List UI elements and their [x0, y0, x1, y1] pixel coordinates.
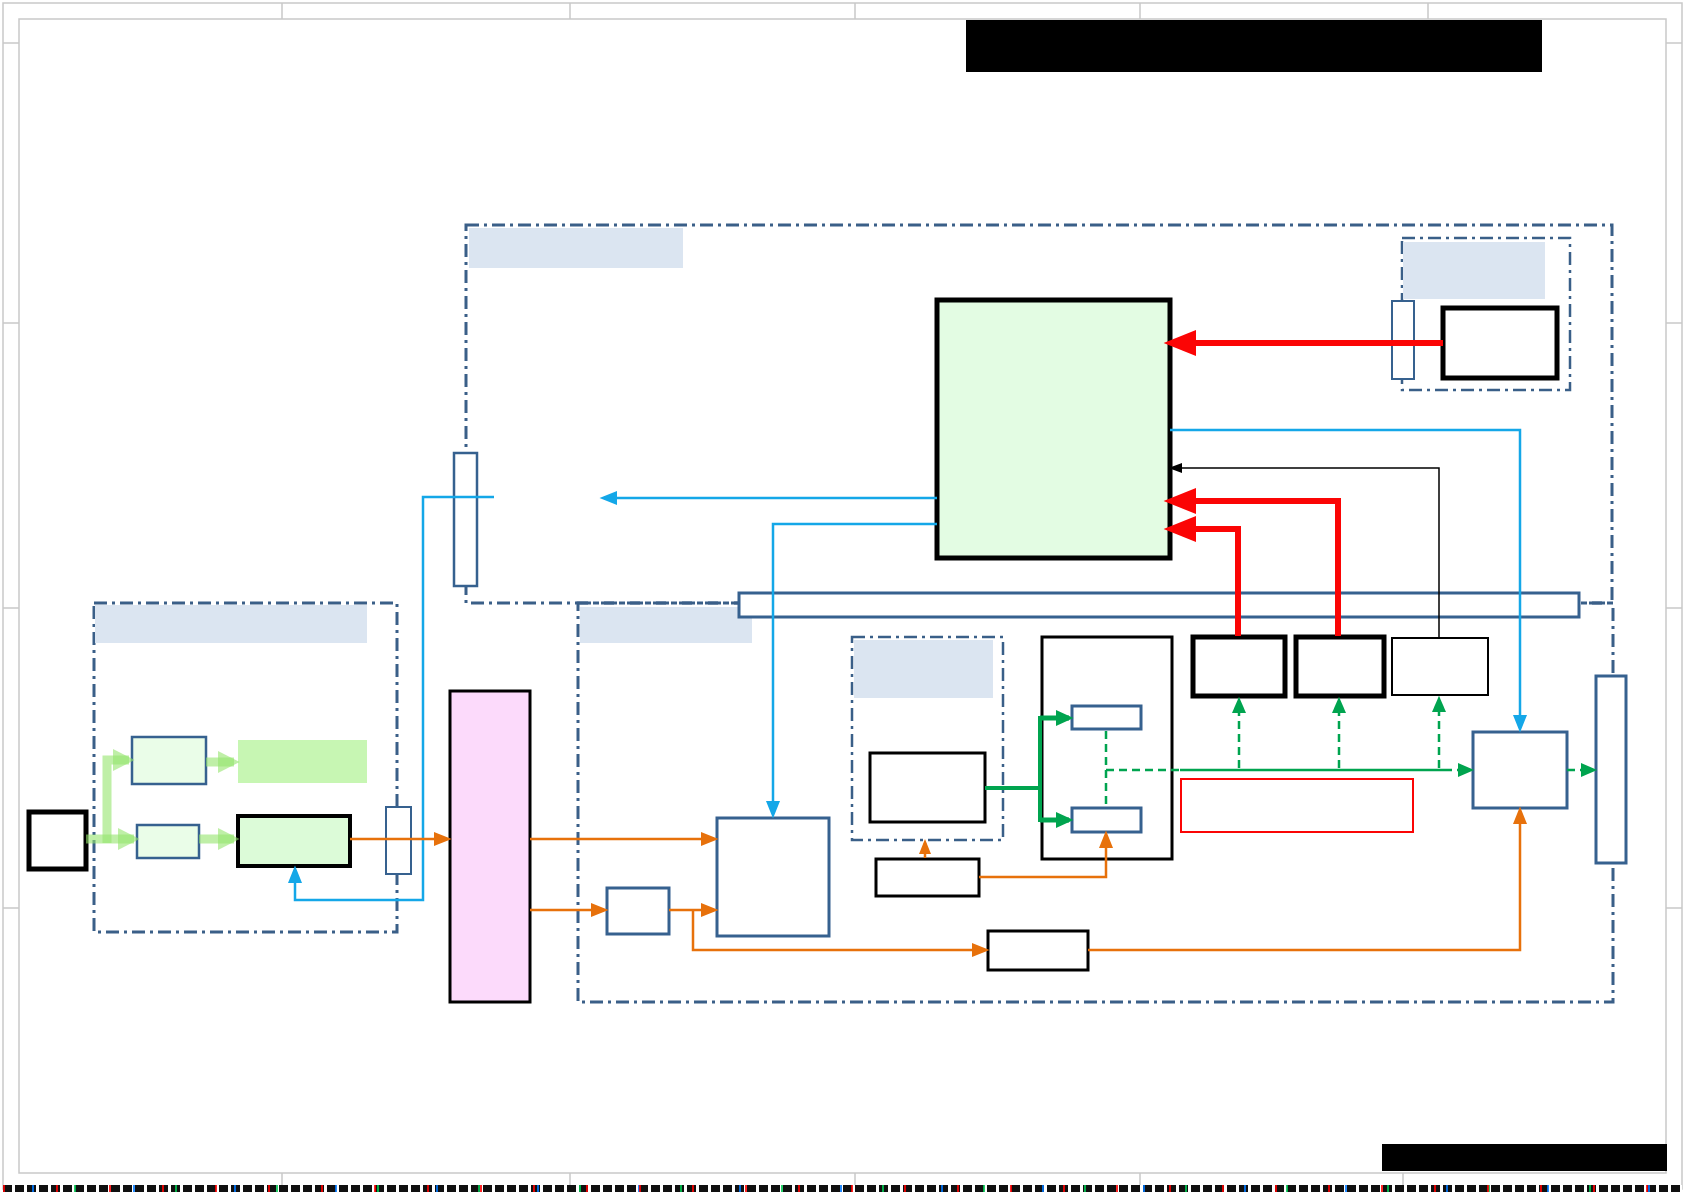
- green-dashed-to-box-b-arrowhead: [1332, 697, 1346, 713]
- cyan-right-drop-arrowhead: [1513, 715, 1527, 733]
- tall-box-blue-bottom: [1072, 808, 1141, 832]
- green-dashed-to-box-a-arrowhead: [1232, 697, 1246, 713]
- right-blue-box: [1473, 732, 1567, 808]
- left-box-upper: [132, 737, 206, 784]
- left-region-port: [386, 807, 411, 874]
- row-box-c: [1392, 638, 1488, 695]
- footer-redaction: [1382, 1144, 1667, 1171]
- pale-green-to-rect-arrowhead: [218, 751, 240, 773]
- big-blue-box: [717, 818, 829, 936]
- schematic-sheet: [0, 0, 1685, 1192]
- red-arrow-low: [1172, 529, 1238, 636]
- cyan-mid-drop-arrowhead: [766, 801, 780, 819]
- green-dashed-to-box-c-arrowhead: [1432, 696, 1446, 712]
- tall-box-blue-top: [1072, 706, 1141, 729]
- middle-black-box: [876, 859, 979, 896]
- small-blue-box: [607, 888, 669, 934]
- orange-middle-up-stub-arrowhead: [919, 839, 931, 854]
- bottom-ruler-strip: [3, 1185, 1682, 1192]
- main-green-block: [937, 300, 1170, 558]
- inner-region-label: [854, 640, 993, 698]
- cyan-left-loop-arrowhead: [288, 866, 302, 884]
- title-block-redaction: [966, 20, 1542, 72]
- left-input-black-box: [29, 812, 86, 869]
- diagram-svg: [0, 0, 1685, 1192]
- red-outline-box: [1181, 779, 1413, 832]
- bottom-region-label: [580, 607, 752, 643]
- bottom-black-box: [988, 931, 1088, 970]
- right-port: [1596, 676, 1626, 863]
- top-region-label: [469, 228, 683, 268]
- top-port: [454, 453, 477, 586]
- bus-bar: [739, 593, 1579, 617]
- inner-black-box: [870, 753, 985, 822]
- left-green-black-box: [238, 816, 350, 866]
- row-box-b: [1296, 637, 1384, 696]
- top-right-black-box: [1443, 308, 1557, 378]
- row-box-a: [1193, 637, 1285, 696]
- left-green-rect: [238, 740, 367, 783]
- pink-block: [450, 691, 530, 1002]
- top-right-region-label: [1403, 242, 1545, 299]
- left-region-label: [95, 605, 367, 643]
- left-box-lower: [137, 825, 199, 858]
- cyan-dangling-arrow-arrowhead: [600, 491, 618, 505]
